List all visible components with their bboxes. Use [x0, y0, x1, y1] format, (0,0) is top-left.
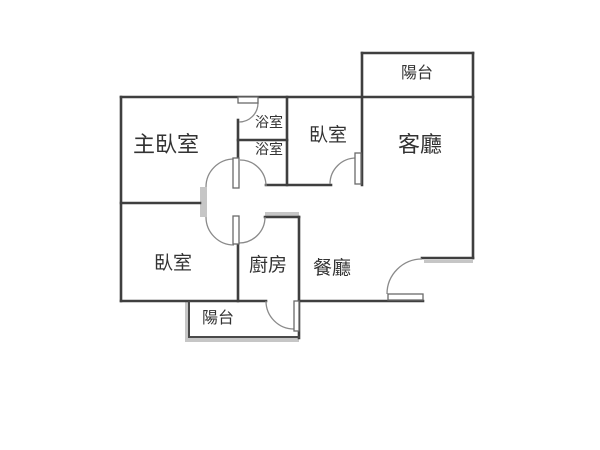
- room-label-balcony-top: 陽台: [401, 63, 433, 82]
- master-bedroom-door-leaf: [233, 158, 239, 188]
- balcony-door-arc: [266, 301, 294, 329]
- kitchen-wall-shadow: [265, 212, 299, 216]
- bathroom-lower-door-arc: [240, 160, 266, 186]
- room-label-kitchen: 廚房: [249, 253, 287, 276]
- room-label-dining-room: 餐廳: [313, 257, 351, 279]
- hall-door-leaf: [233, 216, 239, 244]
- entry-wall-shadow: [424, 260, 473, 263]
- balcony-door-leaf: [294, 301, 299, 331]
- room-label-bedroom-top: 臥室: [309, 124, 347, 146]
- entrance-door-arc: [387, 259, 422, 294]
- bedroom-top-door-leaf: [355, 153, 361, 184]
- bathroom-door-leaf: [238, 97, 258, 103]
- room-label-bathroom-lower: 浴室: [255, 141, 283, 158]
- entrance-threshold: [388, 294, 423, 300]
- bedroom-top-door-arc: [330, 158, 356, 184]
- floor-plan-image: 主臥室 浴室 浴室 臥室 客廳 陽台 臥室 廚房 餐廳 陽台: [0, 0, 600, 450]
- floor-plan-drawing: 主臥室 浴室 浴室 臥室 客廳 陽台 臥室 廚房 餐廳 陽台: [0, 0, 600, 450]
- balcony-bottom-shadow: [185, 338, 299, 342]
- room-label-master-bedroom: 主臥室: [133, 133, 199, 158]
- bedroom-bottom-door-arc: [206, 217, 234, 245]
- master-bedroom-door-arc: [206, 159, 234, 187]
- room-label-bedroom-bottom: 臥室: [154, 252, 192, 274]
- room-label-bathroom-upper: 浴室: [255, 114, 283, 131]
- room-label-living-room: 客廳: [398, 133, 442, 158]
- room-label-balcony-bottom: 陽台: [202, 308, 234, 327]
- kitchen-door-arc: [239, 217, 265, 243]
